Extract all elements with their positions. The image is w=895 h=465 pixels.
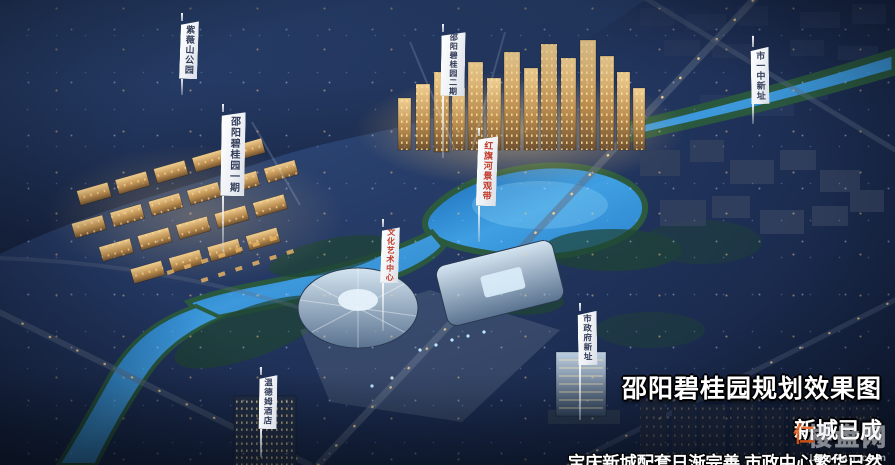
- flag: 红旗河景观带: [476, 136, 498, 207]
- banner-label: 温德姆酒店: [263, 378, 272, 426]
- page-title: 邵阳碧桂园规划效果图: [568, 369, 882, 405]
- flag-pole: [181, 13, 183, 21]
- flag-pole: [442, 96, 444, 158]
- banner-culture-art-center: 文化艺术中心: [381, 227, 399, 283]
- banner-label: 邵阳碧桂园一期: [227, 115, 238, 192]
- flag: 文化艺术中心: [380, 227, 400, 284]
- flag-pole: [222, 196, 224, 252]
- banner-city-government: 市政府新址: [578, 311, 597, 365]
- watermark-name: 仁 楼盘网: [808, 417, 889, 452]
- banner-label: 红旗河景观带: [481, 141, 492, 201]
- flag: 市政府新址: [578, 311, 598, 365]
- flag-pole: [260, 429, 262, 457]
- banner-label: 邵阳碧桂园二期: [448, 32, 457, 95]
- flag: 市一中新址: [751, 47, 770, 104]
- flag-pole: [478, 128, 480, 136]
- banner-label: 市政府新址: [583, 314, 592, 362]
- flag: 紫薇山公园: [179, 21, 199, 80]
- watermark-domain: LouPan.com: [808, 452, 889, 464]
- flag-pole: [222, 104, 224, 112]
- flag: 邵阳碧桂园二期: [440, 32, 465, 96]
- flag: 温德姆酒店: [259, 375, 278, 429]
- flag-pole: [579, 303, 581, 311]
- exhibition-hall: [434, 238, 565, 327]
- city-blocks-east: [640, 140, 884, 234]
- flag-pole: [478, 206, 480, 242]
- flag: 邵阳碧桂园一期: [220, 112, 245, 196]
- banner-label: 市一中新址: [755, 50, 765, 100]
- banner-no1-middle-school: 市一中新址: [751, 47, 769, 104]
- banner-phase2: 邵阳碧桂园二期: [441, 32, 465, 96]
- watermark: 仁 楼盘网 LouPan.com: [808, 417, 889, 464]
- banner-wyndham-hotel: 温德姆酒店: [259, 375, 277, 429]
- flag-pole: [442, 24, 444, 32]
- loupan-logo-icon: 仁: [793, 417, 818, 449]
- flag-pole: [752, 104, 754, 124]
- flag-pole: [260, 367, 262, 375]
- southwest-stream: [58, 306, 222, 465]
- flag-pole: [382, 219, 384, 227]
- masterplan-rendering: 紫薇山公园 邵阳碧桂园一期 邵阳碧桂园二期 红旗河景观带 市一中新址: [0, 0, 895, 465]
- banner-hongqi-river-belt: 红旗河景观带: [477, 136, 497, 206]
- flag-pole: [752, 36, 754, 47]
- banner-ziweishan-park: 紫薇山公园: [180, 21, 198, 79]
- watermark-text: 楼盘网: [808, 424, 889, 451]
- banner-label: 文化艺术中心: [385, 228, 395, 282]
- banner-phase1: 邵阳碧桂园一期: [221, 112, 245, 196]
- flag-pole: [382, 283, 384, 331]
- banner-label: 紫薇山公园: [184, 25, 195, 75]
- flag-pole: [181, 79, 183, 95]
